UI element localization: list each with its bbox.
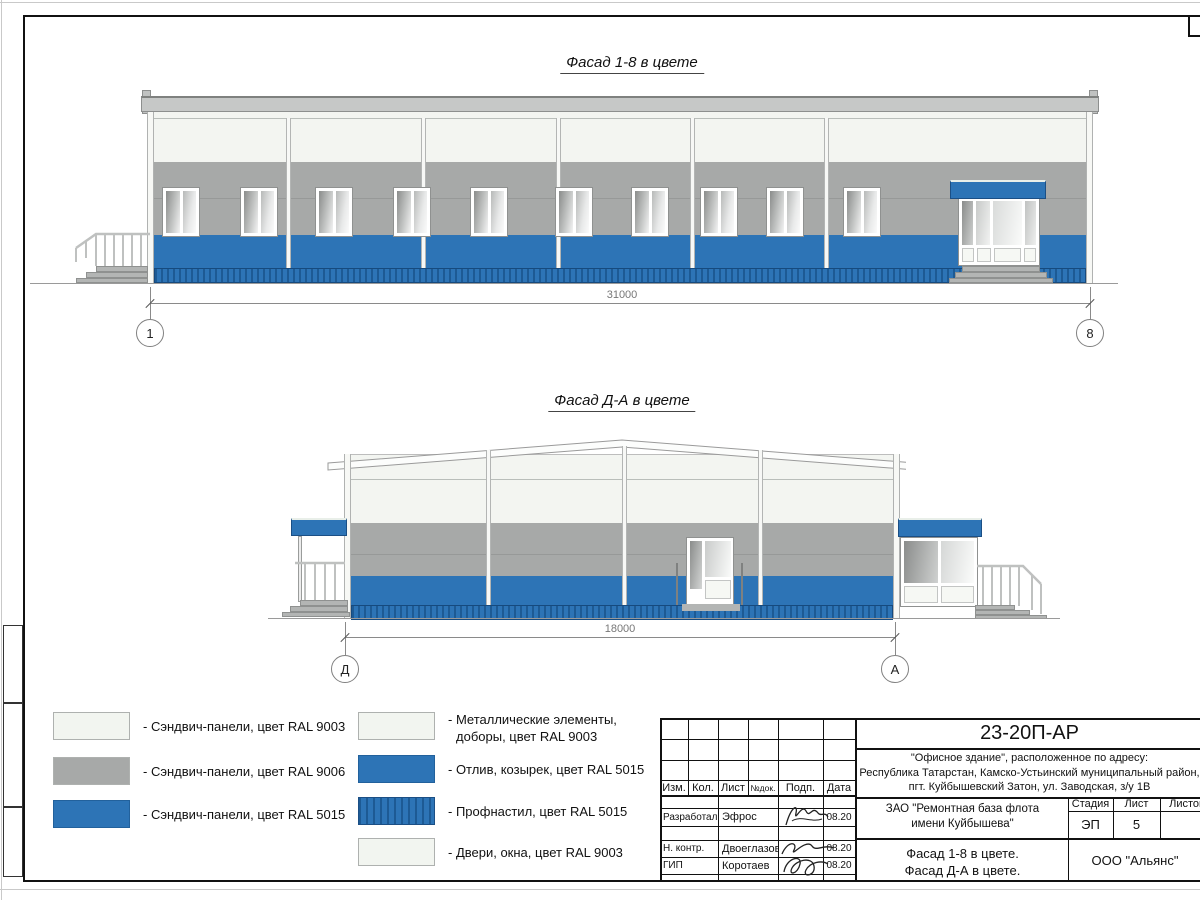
vestibule-canopy-right [898, 518, 982, 537]
corner-docnumber-box [1188, 15, 1200, 37]
ground-line-facade1 [30, 283, 1118, 284]
tb-line [660, 739, 855, 740]
margin-stamp-box-3 [3, 807, 23, 877]
window [766, 187, 804, 237]
tb-name: Двоеглазов [722, 840, 778, 857]
door-glass [1025, 201, 1036, 245]
tb-col-podp: Подп. [778, 780, 823, 795]
tb-role: Н. контр. [663, 840, 718, 857]
tb-address-line2: Республика Татарстан, Камско-Устьинский … [857, 766, 1200, 781]
tb-role: Разработал [663, 808, 718, 826]
tb-col-ndok: №док. [748, 780, 778, 795]
legend-label: - Сэндвич-панели, цвет RAL 5015 [143, 806, 345, 823]
legend-label-line2: доборы, цвет RAL 9003 [456, 729, 597, 744]
door-panel [962, 248, 974, 262]
extension-line [345, 622, 346, 655]
tb-line [660, 795, 855, 797]
window [240, 187, 278, 237]
window [470, 187, 508, 237]
tb-address-line1: "Офисное здание", расположенное по адрес… [857, 751, 1200, 766]
vestibule-panel [904, 586, 938, 603]
axis-marker-a: А [881, 655, 909, 683]
door-glass [993, 201, 1022, 245]
door-railing-post [676, 563, 678, 605]
porch-step [282, 612, 350, 617]
entrance-canopy [950, 180, 1046, 199]
window-glass [787, 191, 800, 233]
window-glass [166, 191, 180, 233]
window [393, 187, 431, 237]
facade-1-8-title: Фасад 1-8 в цвете [560, 54, 704, 74]
vestibule-glass-row [904, 541, 974, 583]
window-glass [652, 191, 665, 233]
facade1-roof-cap [141, 96, 1099, 112]
vestibule-glass [904, 541, 938, 583]
facade1-entrance-door [958, 197, 1040, 266]
facade1-corner-right [1086, 112, 1093, 283]
facade-d-a-title: Фасад Д-А в цвете [548, 392, 695, 412]
legend-label: - Отлив, козырек, цвет RAL 5015 [448, 761, 644, 778]
page-left-edge [1, 0, 2, 900]
tb-role: ГИП [663, 857, 718, 874]
facade2-mullion [758, 450, 763, 605]
dimension-value: 31000 [607, 289, 638, 301]
door-glass [976, 201, 989, 245]
window-glass [704, 191, 718, 233]
legend-label: - Профнастил, цвет RAL 5015 [448, 803, 627, 820]
tb-sheet-label: Лист [1113, 797, 1160, 811]
legend-label: - Сэндвич-панели, цвет RAL 9006 [143, 763, 345, 780]
facade2-door [686, 537, 734, 605]
dimension-value: 18000 [605, 623, 636, 635]
door-panel [1024, 248, 1036, 262]
facade2-mullion [622, 446, 627, 605]
window [700, 187, 738, 237]
facade1-mullion [824, 118, 829, 268]
tb-stage-value: ЭП [1068, 811, 1113, 838]
stair-railing-left [70, 228, 152, 270]
window-glass [183, 191, 196, 233]
dimension-line-18000 [345, 637, 895, 638]
axis-marker-1: 1 [136, 319, 164, 347]
window-glass [414, 191, 427, 233]
facade2-mullion [486, 450, 491, 605]
window [631, 187, 669, 237]
signature-efros [782, 799, 830, 831]
legend-label: - Двери, окна, цвет RAL 9003 [448, 844, 623, 861]
tb-name: Эфрос [722, 808, 778, 826]
window-glass [847, 191, 861, 233]
dimension-line-31000 [150, 303, 1090, 304]
tb-sheet-title: Фасад 1-8 в цвете. Фасад Д-А в цвете. [857, 845, 1068, 879]
window-glass [319, 191, 333, 233]
legend-label-line1: - Металлические элементы, [448, 712, 617, 727]
legend-swatch-metal [358, 712, 435, 740]
window-glass [491, 191, 504, 233]
tb-address: "Офисное здание", расположенное по адрес… [857, 751, 1200, 795]
tb-client-line2: имени Куйбышева" [857, 817, 1068, 832]
window-glass [336, 191, 349, 233]
door-glass [705, 541, 731, 577]
window [843, 187, 881, 237]
door-panel [705, 580, 731, 599]
facade1-mullion [286, 118, 291, 268]
ground-line-facade2 [268, 618, 1060, 619]
door-step-overlay [682, 604, 740, 611]
tb-col-list: Лист [718, 780, 748, 795]
page-bottom-edge [0, 889, 1200, 890]
legend-swatch-otliv [358, 755, 435, 783]
window-glass [474, 191, 488, 233]
tb-client: ЗАО "Ремонтная база флота имени Куйбышев… [857, 802, 1068, 832]
legend-swatch-profnastil [358, 797, 435, 825]
tb-sheet-value: 5 [1113, 811, 1160, 838]
window-glass [770, 191, 784, 233]
tb-sheets-label: Листов [1160, 797, 1200, 811]
facade1-corrugated-base [154, 268, 1086, 283]
vestibule-panel [941, 586, 975, 603]
legend-swatch-ral9006 [53, 757, 130, 785]
tb-line [855, 748, 1200, 750]
door-glass [962, 201, 973, 245]
legend-swatch-doors [358, 838, 435, 866]
tb-address-line3: пгт. Куйбышевский Затон, ул. Заводская, … [857, 780, 1200, 795]
window-glass [721, 191, 734, 233]
facade2-roof [320, 430, 906, 476]
tb-line [660, 760, 855, 761]
tb-stage-label: Стадия [1068, 797, 1113, 811]
window-glass [559, 191, 573, 233]
signature-dvoeglazov-korotaev [776, 836, 840, 880]
legend-swatch-ral5015 [53, 800, 130, 828]
tb-company: ООО "Альянс" [1068, 838, 1200, 882]
window-glass [635, 191, 649, 233]
entrance-kick-panels [962, 248, 1036, 262]
legend-label: - Металлические элементы, доборы, цвет R… [448, 711, 617, 745]
tb-col-kol: Кол. [688, 780, 718, 795]
window [162, 187, 200, 237]
porch-canopy-left [291, 518, 347, 536]
vestibule-glass [941, 541, 975, 583]
margin-stamp-box-2 [3, 703, 23, 807]
facade1-mullion [690, 118, 695, 268]
window-glass [261, 191, 274, 233]
porch-railing-left [293, 558, 347, 604]
tb-sheet-title-line2: Фасад Д-А в цвете. [857, 862, 1068, 879]
legend-label: - Сэндвич-панели, цвет RAL 9003 [143, 718, 345, 735]
window-glass [576, 191, 589, 233]
tb-name: Коротаев [722, 857, 778, 874]
window [555, 187, 593, 237]
axis-marker-d: Д [331, 655, 359, 683]
door-railing-post [741, 563, 743, 605]
tb-col-izm: Изм. [660, 780, 688, 795]
vestibule-panel-row [904, 586, 974, 603]
entrance-glazing [962, 201, 1036, 245]
tb-sheet-title-line1: Фасад 1-8 в цвете. [857, 845, 1068, 862]
vestibule-glazing [900, 537, 978, 607]
door-glass [690, 541, 702, 589]
margin-stamp-box-1 [3, 625, 23, 703]
window-glass [244, 191, 258, 233]
legend-swatch-ral9003 [53, 712, 130, 740]
window-glass [397, 191, 411, 233]
tb-col-data: Дата [823, 780, 855, 795]
page-top-edge [0, 2, 1200, 3]
door-panel [994, 248, 1022, 262]
tb-doc-number: 23-20П-АР [857, 718, 1200, 748]
tb-client-line1: ЗАО "Ремонтная база флота [857, 802, 1068, 817]
window-glass [864, 191, 877, 233]
extension-line [895, 622, 896, 655]
door-panel [977, 248, 991, 262]
axis-marker-8: 8 [1076, 319, 1104, 347]
drawing-sheet: Фасад 1-8 в цвете [0, 0, 1200, 900]
window [315, 187, 353, 237]
